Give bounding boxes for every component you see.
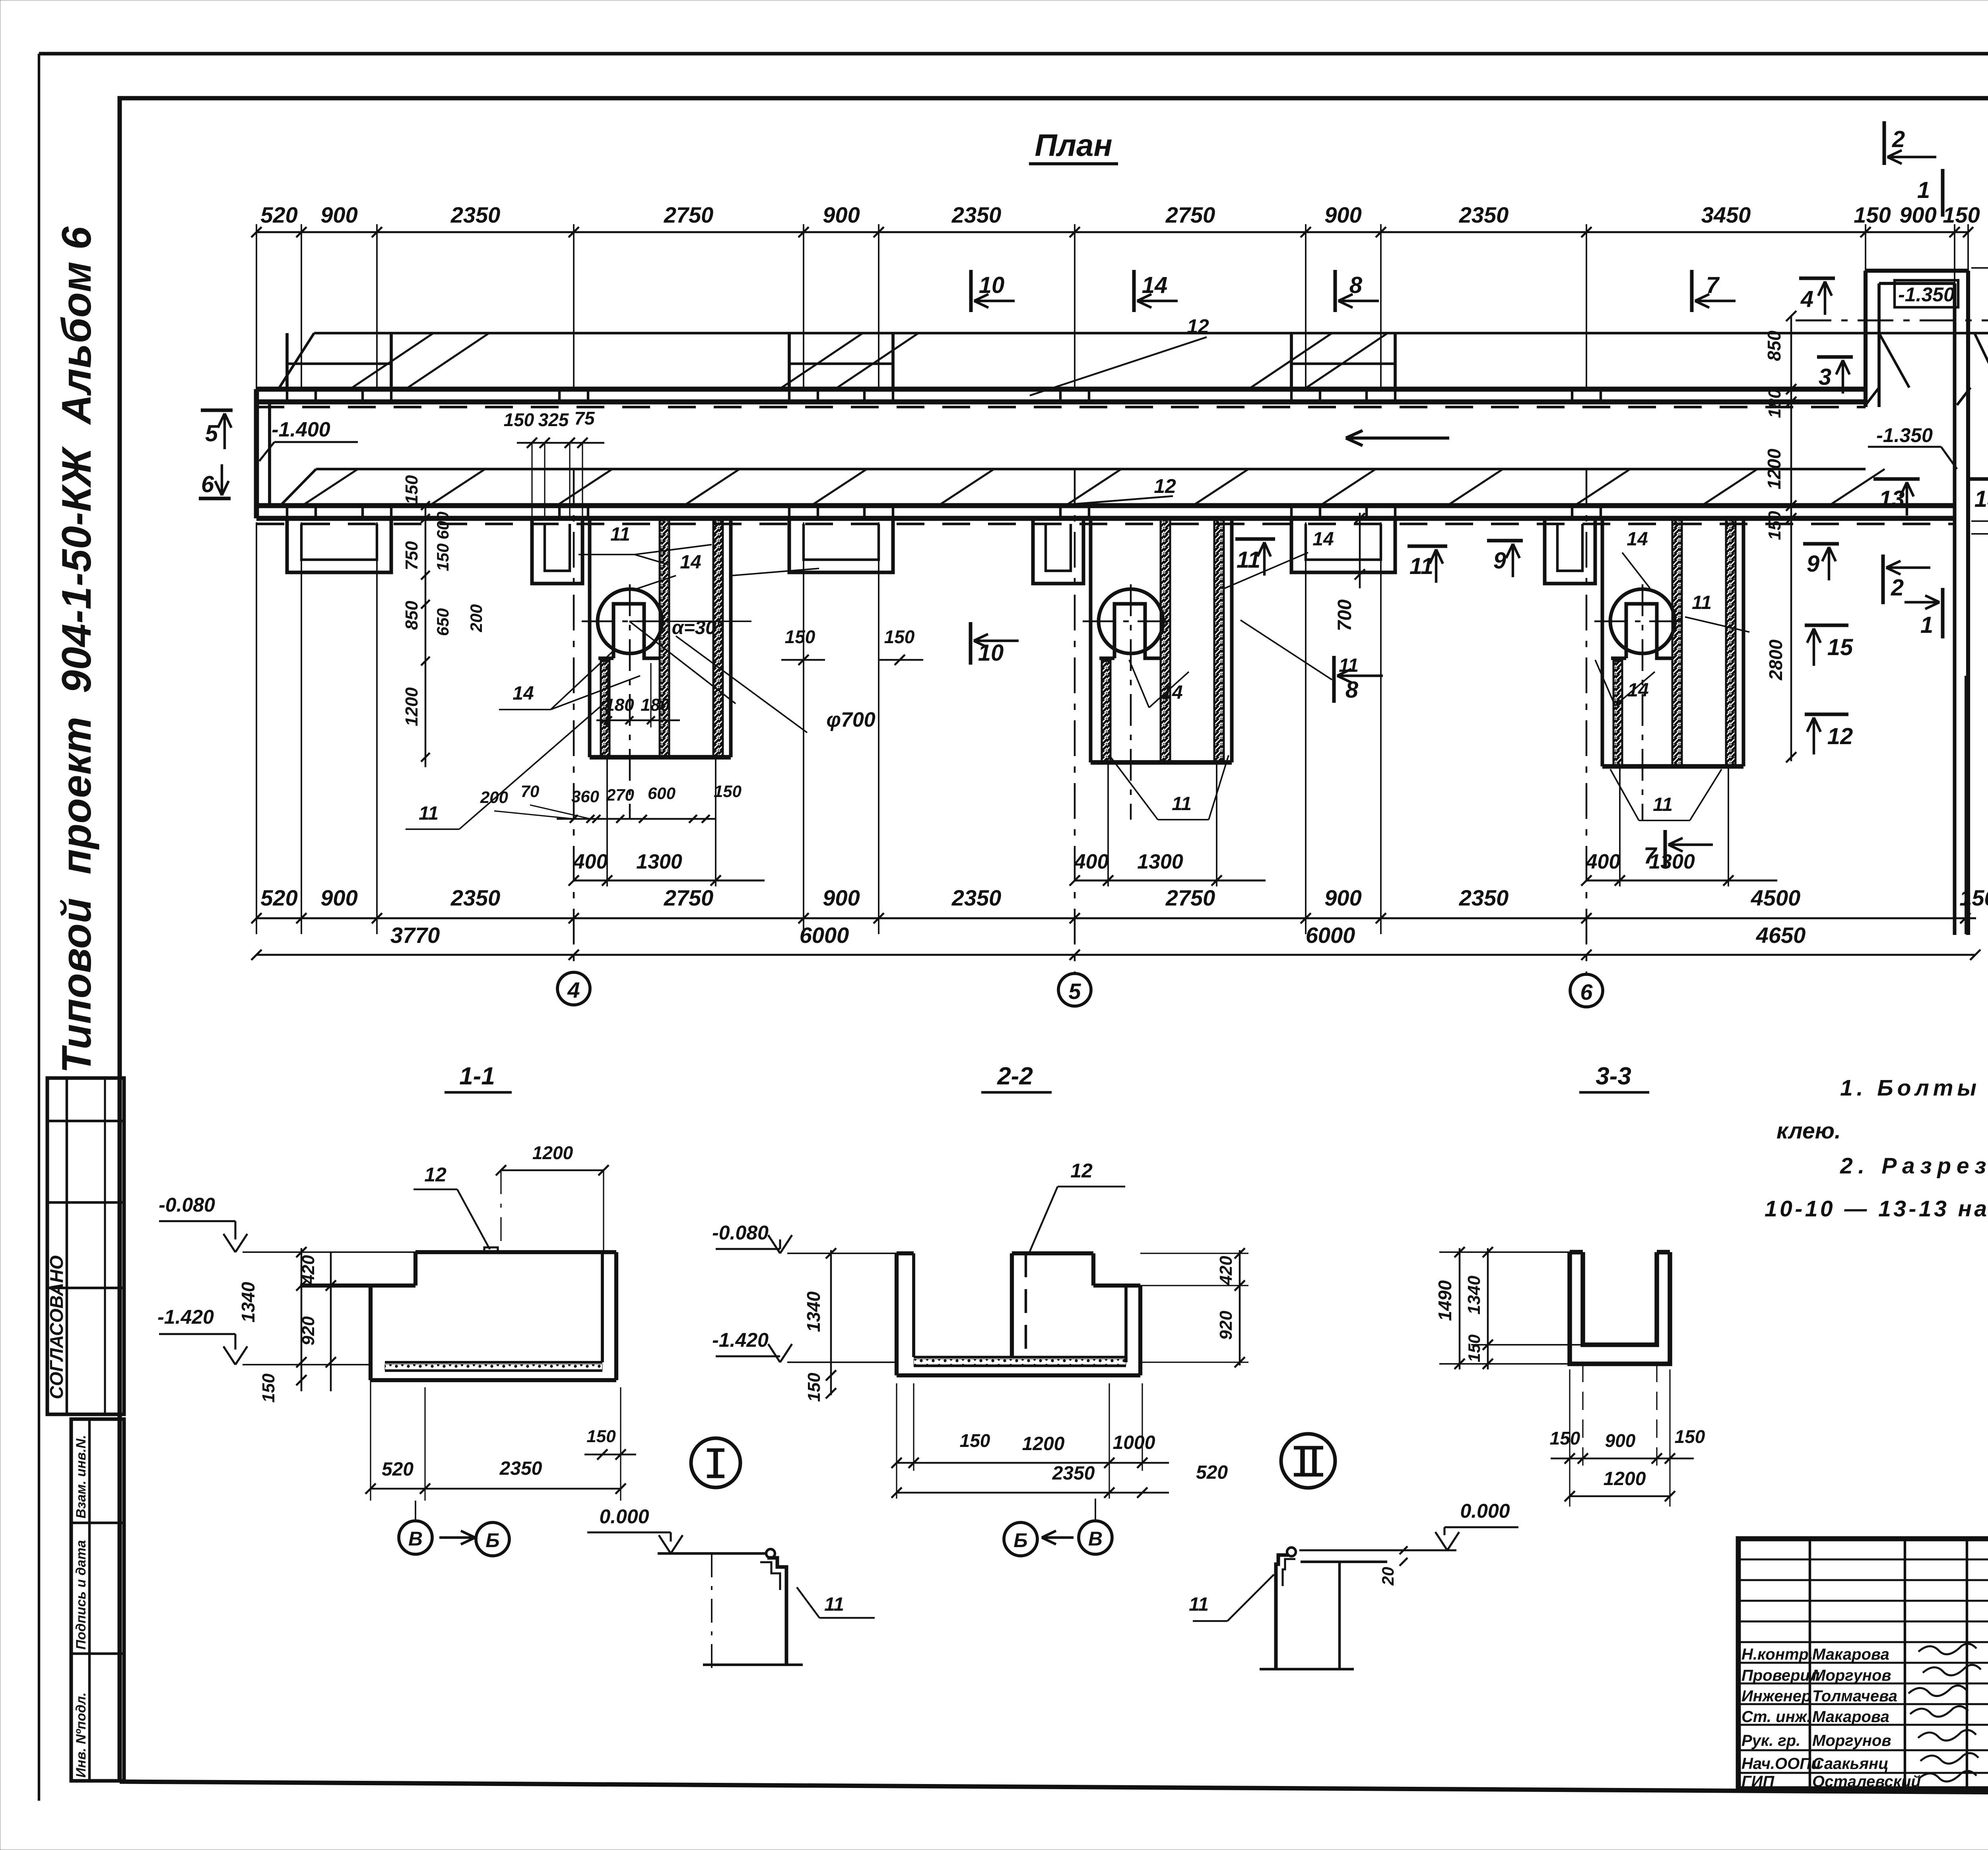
svg-text:3-3: 3-3	[1596, 1063, 1631, 1090]
svg-text:400: 400	[1074, 850, 1109, 873]
svg-text:-1.350: -1.350	[1898, 283, 1955, 306]
svg-text:Инженер: Инженер	[1741, 1687, 1811, 1705]
svg-text:2750: 2750	[664, 885, 714, 910]
svg-text:150: 150	[884, 626, 915, 647]
svg-text:1-1: 1-1	[459, 1063, 495, 1090]
svg-text:600: 600	[433, 512, 452, 539]
svg-text:3770: 3770	[390, 923, 440, 948]
svg-text:-1.350: -1.350	[1876, 424, 1933, 446]
svg-text:13: 13	[1879, 486, 1905, 512]
svg-text:1340: 1340	[1464, 1276, 1484, 1315]
svg-text:5: 5	[1068, 979, 1081, 1004]
svg-text:-1.420: -1.420	[712, 1329, 769, 1351]
svg-text:1200: 1200	[402, 687, 421, 726]
svg-text:900: 900	[320, 202, 357, 227]
svg-text:6: 6	[1580, 979, 1593, 1005]
svg-text:600: 600	[648, 784, 676, 803]
svg-text:12: 12	[1154, 475, 1176, 497]
svg-text:Проверил: Проверил	[1741, 1667, 1820, 1684]
svg-text:Рук. гр.: Рук. гр.	[1741, 1732, 1800, 1749]
svg-text:СОГЛАСОВАНО: СОГЛАСОВАНО	[46, 1255, 67, 1399]
svg-text:900: 900	[1324, 202, 1361, 227]
svg-text:1490: 1490	[1435, 1280, 1455, 1321]
svg-text:1340: 1340	[803, 1291, 824, 1332]
svg-text:В: В	[1088, 1528, 1103, 1550]
svg-text:750: 750	[402, 541, 421, 570]
svg-text:360: 360	[571, 787, 599, 806]
svg-text:11: 11	[1692, 592, 1712, 613]
svg-text:2: 2	[1892, 126, 1905, 152]
svg-text:0.000: 0.000	[599, 1505, 649, 1528]
svg-text:6000: 6000	[1306, 923, 1355, 948]
svg-text:Б: Б	[485, 1529, 499, 1551]
svg-text:180: 180	[605, 695, 634, 715]
svg-text:2750: 2750	[1165, 202, 1215, 227]
svg-text:325: 325	[538, 409, 569, 430]
svg-text:6: 6	[201, 471, 214, 497]
svg-text:2: 2	[1891, 575, 1904, 601]
svg-text:11: 11	[1189, 1594, 1209, 1615]
svg-text:8: 8	[1345, 677, 1359, 703]
svg-text:150: 150	[960, 1430, 990, 1451]
svg-text:11: 11	[824, 1594, 844, 1615]
svg-text:900: 900	[1605, 1430, 1636, 1451]
svg-text:900: 900	[1899, 202, 1936, 227]
svg-text:920: 920	[299, 1316, 318, 1346]
svg-text:Моргунов: Моргунов	[1812, 1667, 1891, 1684]
svg-text:420: 420	[299, 1255, 318, 1285]
svg-text:900: 900	[823, 202, 860, 227]
svg-text:150: 150	[1465, 1334, 1483, 1362]
svg-text:Ст. инж.: Ст. инж.	[1741, 1708, 1811, 1726]
svg-text:5: 5	[205, 421, 218, 446]
svg-text:1200: 1200	[1022, 1433, 1065, 1454]
svg-text:12: 12	[1070, 1160, 1093, 1182]
svg-text:4: 4	[1800, 286, 1813, 312]
svg-text:В: В	[408, 1528, 423, 1550]
svg-text:200: 200	[480, 788, 508, 807]
svg-text:14: 14	[1312, 529, 1334, 550]
svg-text:Подпись и дата: Подпись и дата	[74, 1540, 89, 1650]
svg-text:9: 9	[1493, 548, 1506, 574]
svg-text:Н.контр.: Н.контр.	[1741, 1646, 1813, 1663]
svg-text:1200: 1200	[1764, 448, 1784, 489]
svg-text:Взам. инв.N.: Взам. инв.N.	[74, 1435, 89, 1518]
svg-text:-0.080: -0.080	[712, 1222, 769, 1244]
svg-text:150: 150	[504, 409, 534, 430]
svg-text:650: 650	[433, 608, 452, 636]
svg-text:2350: 2350	[1052, 1463, 1095, 1484]
svg-text:14: 14	[1142, 272, 1168, 298]
svg-text:12: 12	[1187, 315, 1209, 337]
svg-text:1300: 1300	[1137, 850, 1183, 873]
svg-text:75: 75	[574, 408, 595, 429]
svg-text:1200: 1200	[1604, 1468, 1646, 1489]
svg-text:200: 200	[467, 604, 485, 632]
svg-text:Моргунов: Моргунов	[1812, 1732, 1891, 1749]
svg-text:70: 70	[521, 782, 540, 801]
svg-text:0.000: 0.000	[1460, 1500, 1510, 1522]
svg-text:11: 11	[1409, 553, 1433, 579]
svg-text:1: 1	[1920, 612, 1933, 638]
svg-text:7: 7	[1706, 272, 1720, 298]
svg-text:Б: Б	[1013, 1529, 1027, 1551]
svg-text:11: 11	[1172, 793, 1192, 814]
svg-text:11: 11	[419, 803, 439, 824]
svg-text:150: 150	[1943, 202, 1980, 227]
svg-text:14: 14	[1627, 680, 1648, 701]
svg-text:180: 180	[641, 695, 670, 715]
svg-text:270: 270	[606, 785, 634, 804]
svg-text:520: 520	[382, 1459, 414, 1480]
svg-text:850: 850	[1764, 330, 1784, 361]
svg-text:ГИП: ГИП	[1741, 1773, 1774, 1790]
svg-text:4650: 4650	[1756, 923, 1806, 948]
svg-text:2350: 2350	[1459, 885, 1509, 910]
svg-text:8: 8	[1349, 272, 1363, 298]
svg-text:14: 14	[680, 552, 701, 573]
svg-text:14: 14	[513, 683, 534, 704]
svg-text:-0.080: -0.080	[159, 1194, 215, 1216]
svg-text:14: 14	[1627, 529, 1648, 550]
svg-text:150: 150	[785, 626, 815, 647]
svg-text:-1.400: -1.400	[272, 418, 330, 441]
svg-text:150: 150	[1765, 511, 1784, 540]
svg-text:7: 7	[1644, 843, 1658, 869]
svg-text:11: 11	[1653, 794, 1673, 815]
svg-text:400: 400	[1586, 850, 1621, 873]
svg-text:15: 15	[1827, 634, 1853, 660]
svg-text:150: 150	[586, 1427, 616, 1446]
svg-text:2350: 2350	[499, 1458, 542, 1479]
svg-text:900: 900	[320, 885, 357, 910]
svg-text:2350: 2350	[951, 885, 1002, 910]
svg-text:900: 900	[1324, 885, 1361, 910]
svg-text:150: 150	[1675, 1426, 1705, 1447]
svg-text:2750: 2750	[1165, 885, 1215, 910]
svg-text:1: 1	[1917, 177, 1930, 203]
svg-text:Толмачева: Толмачева	[1812, 1687, 1897, 1705]
svg-text:6000: 6000	[800, 923, 849, 948]
svg-text:520: 520	[260, 885, 297, 910]
svg-text:420: 420	[1216, 1256, 1236, 1286]
svg-text:150: 150	[433, 543, 452, 571]
svg-text:20: 20	[1378, 1567, 1397, 1586]
svg-text:700: 700	[1334, 599, 1355, 631]
svg-text:-1.420: -1.420	[157, 1306, 214, 1328]
svg-text:180: 180	[1765, 389, 1784, 418]
svg-text:400: 400	[573, 850, 608, 873]
svg-text:150: 150	[804, 1373, 824, 1402]
svg-text:1300: 1300	[636, 850, 682, 873]
svg-text:2-2: 2-2	[997, 1063, 1033, 1090]
svg-text:1000: 1000	[1113, 1432, 1155, 1453]
svg-text:α=30°: α=30°	[672, 617, 724, 638]
svg-text:150: 150	[1959, 885, 1988, 910]
svg-text:Макарова: Макарова	[1812, 1646, 1889, 1663]
svg-text:2350: 2350	[1459, 202, 1509, 227]
svg-text:3450: 3450	[1701, 202, 1751, 227]
svg-text:4500: 4500	[1751, 885, 1801, 910]
svg-text:2350: 2350	[450, 202, 501, 227]
svg-text:Осталевский: Осталевский	[1812, 1773, 1921, 1790]
svg-text:150: 150	[402, 475, 421, 504]
svg-text:Нач.ООПи: Нач.ООПи	[1741, 1755, 1821, 1772]
svg-text:Макарова: Макарова	[1812, 1708, 1889, 1726]
svg-text:520: 520	[260, 202, 297, 227]
svg-text:12: 12	[424, 1164, 447, 1186]
svg-text:150: 150	[714, 782, 742, 801]
svg-text:150: 150	[1550, 1428, 1580, 1449]
svg-text:Саакьянц: Саакьянц	[1812, 1755, 1889, 1772]
svg-text:520: 520	[1196, 1462, 1228, 1483]
svg-text:900: 900	[823, 885, 860, 910]
svg-text:920: 920	[1216, 1311, 1236, 1340]
svg-text:клею.: клею.	[1776, 1118, 1841, 1144]
svg-text:4: 4	[567, 977, 580, 1003]
svg-text:13: 13	[1974, 486, 1988, 512]
svg-text:850: 850	[402, 601, 421, 630]
svg-text:11: 11	[1339, 655, 1359, 676]
svg-text:11: 11	[1237, 547, 1260, 573]
svg-text:9: 9	[1807, 551, 1819, 577]
svg-text:2800: 2800	[1765, 639, 1786, 681]
svg-text:3: 3	[1819, 364, 1831, 390]
svg-text:10: 10	[978, 640, 1004, 666]
svg-text:2350: 2350	[951, 202, 1002, 227]
svg-text:План: План	[1035, 128, 1112, 163]
svg-text:10: 10	[979, 272, 1005, 298]
svg-text:1340: 1340	[238, 1282, 258, 1323]
svg-text:Типовой проект 904-1-50-КЖ: Типовой проект 904-1-50-КЖ Альбом 6	[54, 226, 100, 1073]
svg-text:Инв. Nºподл.: Инв. Nºподл.	[74, 1692, 89, 1778]
svg-text:11: 11	[610, 524, 630, 545]
svg-text:12: 12	[1827, 723, 1853, 749]
svg-text:2350: 2350	[450, 885, 501, 910]
svg-text:2750: 2750	[664, 202, 714, 227]
svg-text:150: 150	[259, 1373, 278, 1403]
svg-text:φ700: φ700	[826, 708, 875, 731]
svg-text:150: 150	[1854, 202, 1891, 227]
svg-text:2. Разрезы 5-5 — 9-9 даны: 2. Разрезы 5-5 — 9-9 даны на листе 20	[1840, 1153, 1988, 1179]
svg-text:1200: 1200	[532, 1142, 573, 1163]
